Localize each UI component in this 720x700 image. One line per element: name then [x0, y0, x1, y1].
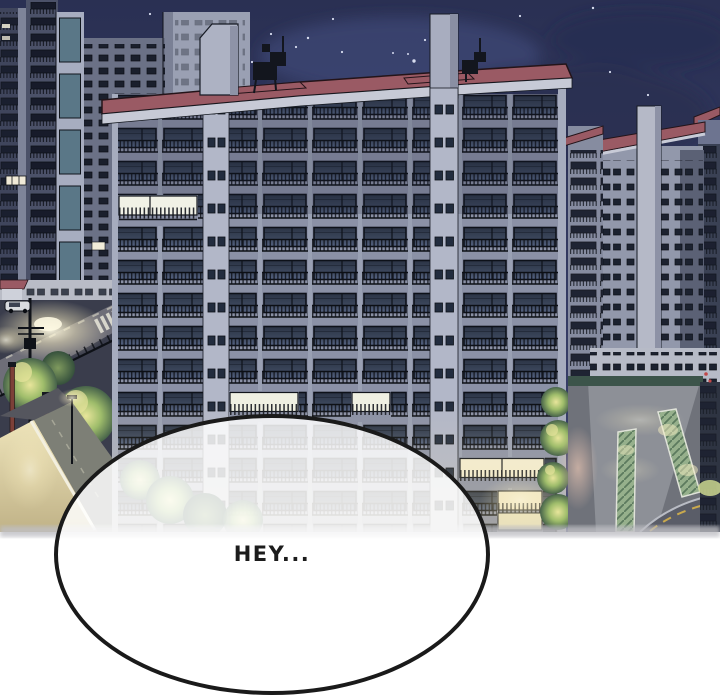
speech-bubble: HEY... [54, 414, 490, 695]
speech-text: HEY... [58, 542, 486, 566]
lit-window [6, 176, 26, 185]
lit-window [92, 242, 105, 250]
hedge [616, 429, 636, 532]
webtoon-panel: HEY... [0, 0, 720, 700]
car [5, 301, 30, 313]
courtyard [558, 372, 720, 532]
